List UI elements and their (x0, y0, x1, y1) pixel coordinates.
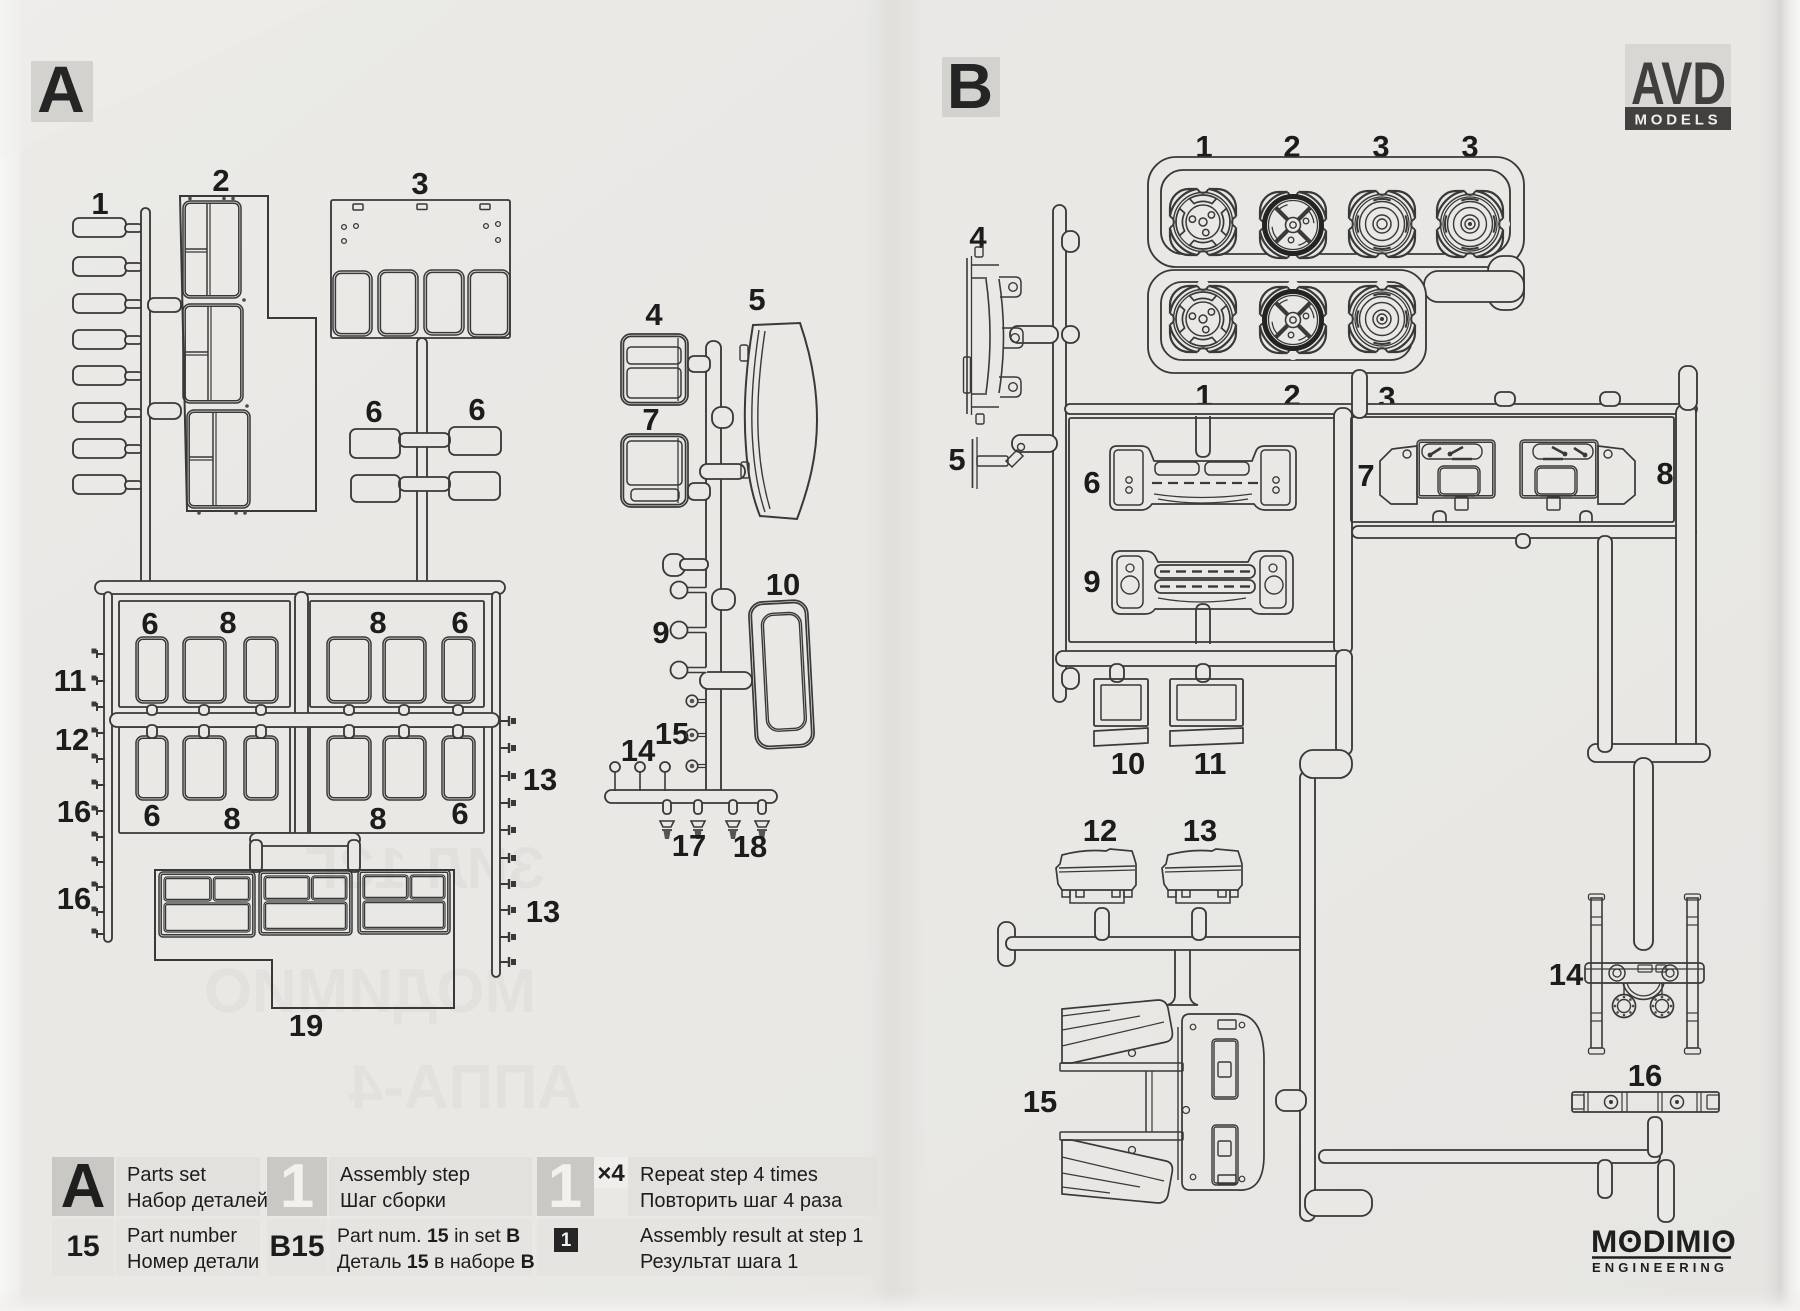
svg-text:4: 4 (969, 220, 987, 255)
svg-text:1: 1 (561, 1230, 572, 1251)
svg-text:A: A (37, 52, 85, 126)
svg-text:13: 13 (1183, 813, 1217, 848)
svg-text:1: 1 (91, 186, 108, 221)
svg-text:Assembly step: Assembly step (340, 1164, 470, 1186)
svg-text:Repeat step 4 times: Repeat step 4 times (640, 1164, 818, 1186)
svg-text:16: 16 (57, 794, 91, 829)
svg-text:8: 8 (219, 605, 236, 640)
svg-text:MODELS: MODELS (1635, 112, 1722, 129)
svg-text:11: 11 (1194, 746, 1227, 781)
svg-text:B: B (947, 50, 993, 122)
svg-text:8: 8 (369, 801, 386, 836)
svg-text:13: 13 (523, 762, 557, 797)
svg-text:6: 6 (365, 394, 382, 429)
svg-text:Parts set: Parts set (127, 1164, 206, 1186)
svg-text:14: 14 (621, 733, 656, 768)
svg-text:A: A (61, 1152, 106, 1221)
svg-text:Номер детали: Номер детали (127, 1251, 259, 1273)
svg-text:15: 15 (655, 716, 689, 751)
svg-text:7: 7 (642, 402, 659, 437)
svg-text:MODIMIO: MODIMIO (1591, 1223, 1736, 1259)
svg-text:16: 16 (1628, 1058, 1662, 1093)
svg-text:B15: B15 (269, 1230, 324, 1263)
svg-text:Part number: Part number (127, 1225, 237, 1247)
svg-text:5: 5 (948, 442, 965, 477)
svg-text:6: 6 (143, 798, 160, 833)
svg-text:18: 18 (733, 829, 767, 864)
svg-text:1: 1 (548, 1152, 582, 1221)
svg-text:×4: ×4 (597, 1160, 625, 1187)
svg-text:1: 1 (280, 1152, 314, 1221)
svg-text:Результат шага 1: Результат шага 1 (640, 1251, 798, 1273)
svg-text:6: 6 (451, 605, 468, 640)
svg-text:12: 12 (55, 722, 89, 757)
svg-text:8: 8 (223, 801, 240, 836)
svg-text:19: 19 (289, 1008, 323, 1043)
svg-text:6: 6 (451, 796, 468, 831)
svg-text:АППА-4: АППА-4 (348, 1053, 582, 1122)
svg-text:5: 5 (748, 282, 765, 317)
svg-text:4: 4 (645, 297, 663, 332)
svg-text:Деталь 15 в наборе B: Деталь 15 в наборе B (337, 1251, 535, 1273)
svg-text:Part num. 15 in set B: Part num. 15 in set B (337, 1225, 520, 1247)
svg-text:15: 15 (1023, 1084, 1057, 1119)
svg-text:МОДИМИО: МОДИМИО (204, 957, 536, 1026)
svg-text:6: 6 (468, 392, 485, 427)
svg-text:15: 15 (66, 1230, 99, 1263)
svg-text:7: 7 (1357, 458, 1374, 493)
svg-text:2: 2 (212, 163, 229, 198)
svg-text:8: 8 (369, 605, 386, 640)
svg-text:16: 16 (57, 881, 91, 916)
svg-text:Шаг сборки: Шаг сборки (340, 1190, 446, 1212)
svg-text:14: 14 (1549, 957, 1584, 992)
svg-text:10: 10 (766, 567, 800, 602)
svg-text:ENGINEERING: ENGINEERING (1592, 1260, 1728, 1275)
svg-text:3: 3 (411, 166, 428, 201)
svg-text:13: 13 (526, 894, 560, 929)
svg-text:Assembly result at step 1: Assembly result at step 1 (640, 1225, 863, 1247)
svg-text:12: 12 (1083, 813, 1117, 848)
svg-text:Набор деталей: Набор деталей (127, 1190, 268, 1212)
svg-text:9: 9 (1083, 564, 1100, 599)
svg-text:8: 8 (1656, 456, 1673, 491)
svg-text:11: 11 (54, 663, 87, 698)
svg-text:6: 6 (1083, 465, 1100, 500)
svg-text:10: 10 (1111, 746, 1145, 781)
svg-text:Повторить шаг 4 раза: Повторить шаг 4 раза (640, 1190, 843, 1212)
svg-text:17: 17 (672, 828, 706, 863)
svg-text:6: 6 (141, 606, 158, 641)
svg-text:AVD: AVD (1631, 50, 1726, 117)
svg-text:9: 9 (652, 615, 669, 650)
